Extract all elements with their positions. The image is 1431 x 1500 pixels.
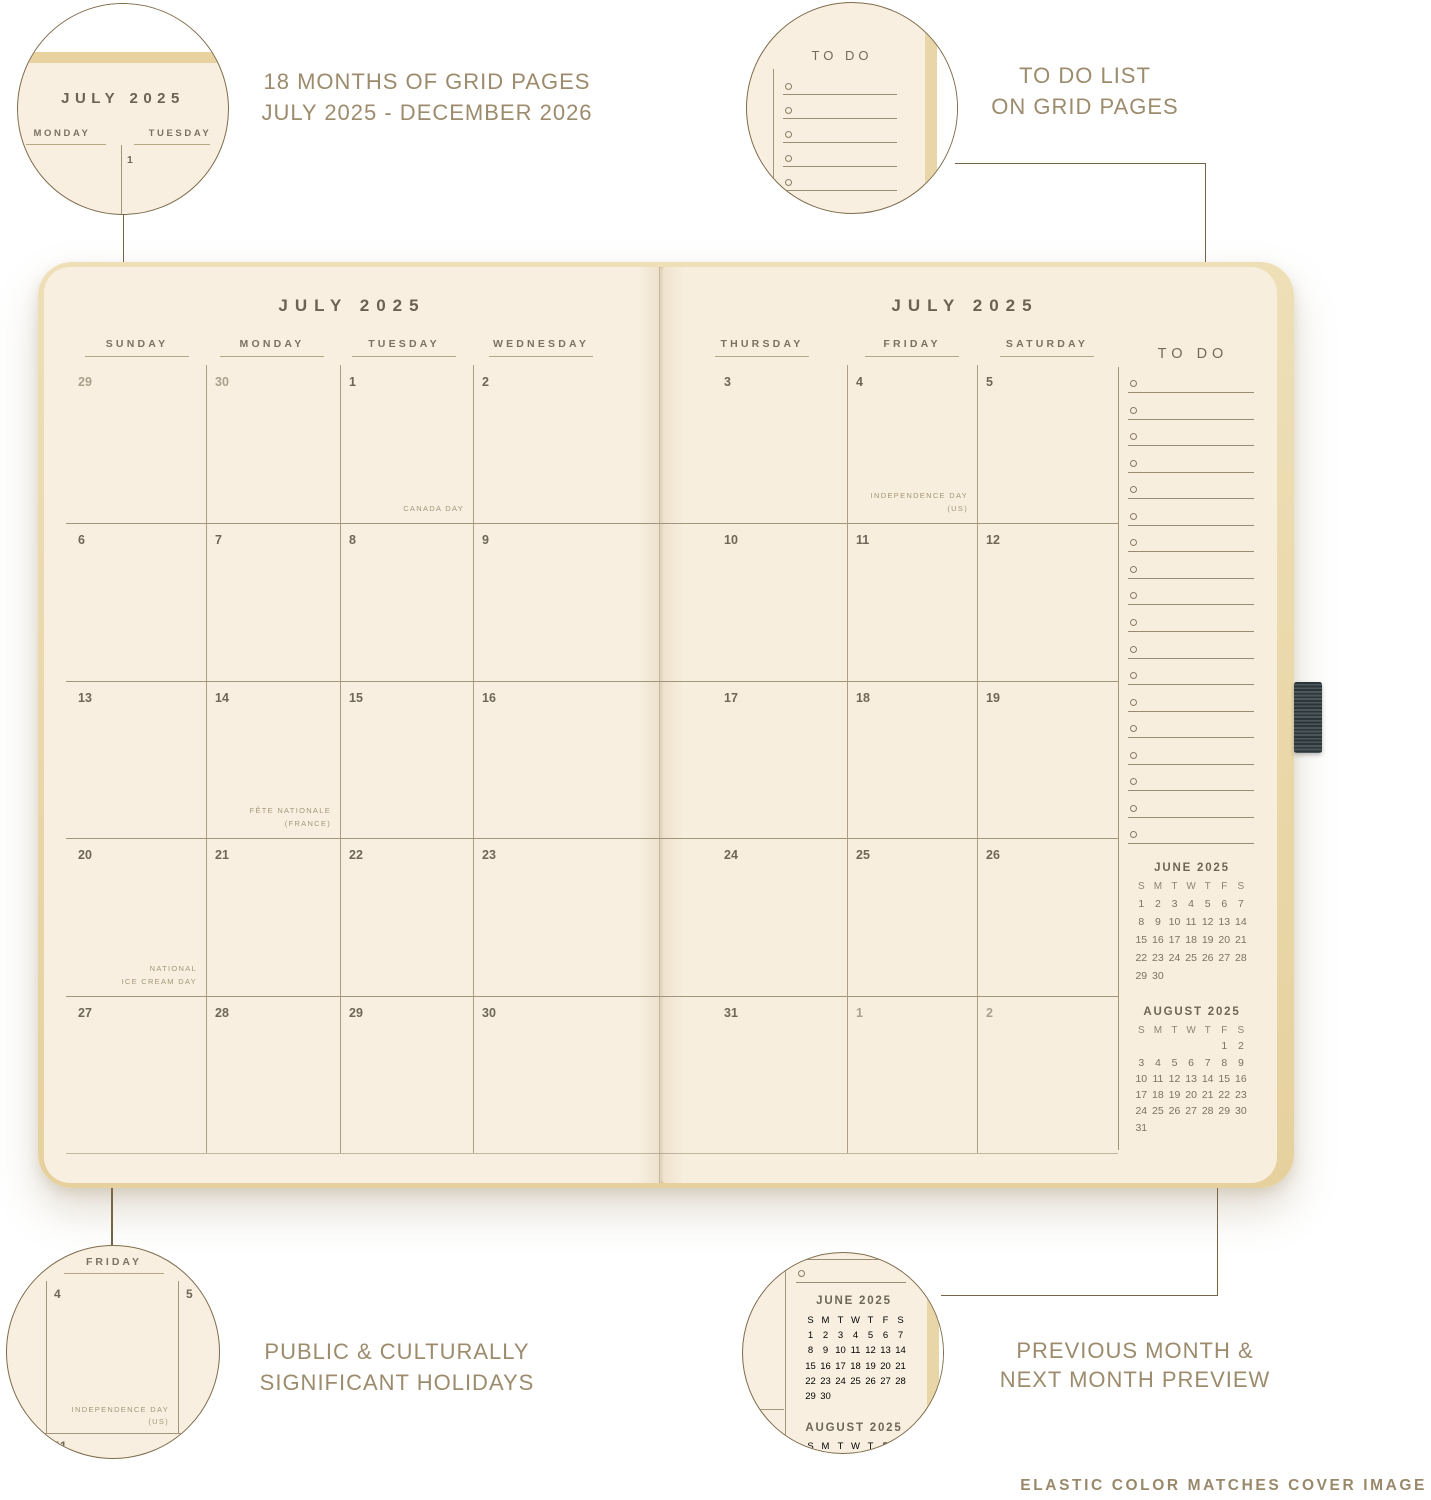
todo-item-circle-icon: [1130, 831, 1137, 838]
todo-item-8: [1128, 566, 1254, 592]
cell-date-number: 6: [78, 533, 85, 547]
todo-item-18: [1128, 831, 1254, 857]
mini-cal-date: 8: [1133, 916, 1150, 928]
mini-cal-wrap: JUNE 2025SMTWTFS123456789101112131415161…: [1133, 862, 1251, 982]
bubble4-june-week-3: 15161718192021: [803, 1356, 908, 1371]
mini-cal-date: 7: [1233, 898, 1250, 910]
todo-item-11: [1128, 646, 1254, 672]
mini-cal-date: 16: [818, 1361, 833, 1372]
mini-cal-date: 20: [878, 1361, 893, 1372]
mini-cal-weekday-row: SMTWTFS: [1133, 881, 1251, 892]
mini-cal-date: 28: [1199, 1105, 1216, 1117]
todo-item-17: [1128, 805, 1254, 831]
caption-preview-line1: PREVIOUS MONTH &: [935, 1336, 1335, 1365]
mini-cal-week-3: 15161718192021: [1133, 928, 1251, 946]
mini-cal-date: 10: [1166, 916, 1183, 928]
mini-cal-date: 2: [1233, 1040, 1250, 1052]
cell-date-number: 10: [724, 533, 738, 547]
left-page-cell-r5c3: 29: [340, 996, 473, 1153]
todo-item-3: [1128, 433, 1254, 459]
bubble2-white-edge: [937, 3, 957, 213]
mini-cal-date: 6: [878, 1330, 893, 1341]
bubble4-row-line-left: [751, 1409, 784, 1410]
mini-cal-date: 28: [1233, 952, 1250, 964]
todo-item-circle-icon: [1130, 566, 1137, 573]
todo-item-circle-icon: [1130, 433, 1137, 440]
right-page-cell-r4c1: 24: [680, 838, 847, 996]
right-page-cell-r5c3: 2: [977, 996, 1118, 1153]
right-page-cell-r3c3: 19: [977, 681, 1118, 838]
left-page-cell-r5c1: 27: [62, 996, 206, 1153]
todo-item-rule-line: [1128, 631, 1254, 632]
caption-grid-pages-line2: JULY 2025 - DECEMBER 2026: [177, 97, 677, 128]
right-page-cell-r5c2: 1: [847, 996, 977, 1153]
caption-holidays-line2: SIGNIFICANT HOLIDAYS: [147, 1367, 647, 1398]
mini-cal-week-2: 3456789: [1133, 1052, 1251, 1068]
left-page-cell-r5c4: 30: [473, 996, 654, 1153]
left-page-cell-r2c2: 7: [206, 523, 340, 681]
todo-item-circle-icon: [1130, 672, 1137, 679]
todo-item-rule-line: [1128, 578, 1254, 579]
todo-item-rule-line: [1128, 790, 1254, 791]
bubble1-tuesday-label: TUESDAY: [134, 128, 226, 139]
mini-cal-weekday: T: [1199, 1025, 1216, 1036]
right-page-cell-r2c2: 11: [847, 523, 977, 681]
mini-cal-date: 9: [1150, 916, 1167, 928]
caption-preview-line2: NEXT MONTH PREVIEW: [935, 1365, 1335, 1394]
todo-item-circle-icon: [1130, 486, 1137, 493]
cell-date-number: 2: [986, 1006, 993, 1020]
mini-cal-weekday: F: [878, 1441, 893, 1452]
todo-item-rule-line: [1128, 843, 1254, 844]
mini-cal-date: 16: [1233, 1073, 1250, 1085]
todo-item-circle-icon: [1130, 407, 1137, 414]
mini-cal-date: 20: [1216, 934, 1233, 946]
bubble2-todo-rule-line: [783, 190, 897, 191]
mini-cal-weekday: S: [1133, 1025, 1150, 1036]
cell-date-number: 23: [482, 848, 496, 862]
mini-cal-date: 9: [1233, 1057, 1250, 1069]
bubble4-june-week-1: 1234567: [803, 1326, 908, 1341]
bubble4-todo-line-top: [793, 1259, 905, 1260]
mini-cal-weekday: S: [803, 1441, 818, 1452]
mini-cal-date: 17: [833, 1361, 848, 1372]
mini-cal-weekday: W: [848, 1315, 863, 1326]
mini-cal-week-1: 12: [1133, 1036, 1251, 1052]
mini-cal-week-3: 10111213141516: [1133, 1069, 1251, 1085]
left-page-cell-r1c4: 2: [473, 365, 654, 523]
caption-grid-pages: 18 MONTHS OF GRID PAGES JULY 2025 - DECE…: [177, 66, 677, 128]
cell-date-number: 11: [856, 533, 869, 547]
todo-item-rule-line: [1128, 711, 1254, 712]
mini-cal-date: 13: [1183, 1073, 1200, 1085]
todo-item-rule-line: [1128, 498, 1254, 499]
mini-cal-date: 27: [1183, 1105, 1200, 1117]
mini-cal-date: 29: [1216, 1105, 1233, 1117]
day-header-saturday: SATURDAY: [1000, 338, 1094, 357]
bubble4-todo-line: [796, 1282, 906, 1283]
todo-item-circle-icon: [1130, 592, 1137, 599]
todo-item-13: [1128, 699, 1254, 725]
mini-cal-date: 26: [863, 1376, 878, 1387]
bubble1-date-1: 1: [127, 154, 133, 166]
cell-date-number: 4: [856, 375, 863, 389]
mini-cal-date: 25: [848, 1376, 863, 1387]
bubble2-todo-circle-icon: [785, 155, 792, 162]
left-page-title: JULY 2025: [278, 296, 425, 316]
todo-item-circle-icon: [1130, 778, 1137, 785]
cell-date-number: 18: [856, 691, 870, 705]
cell-date-number: 16: [482, 691, 496, 705]
mini-cal-weekday: W: [1183, 1025, 1200, 1036]
bubble2-todo-rule-line: [783, 118, 897, 119]
mini-cal-date: 18: [848, 1361, 863, 1372]
bubble2-cover-edge: [925, 3, 937, 213]
todo-item-circle-icon: [1130, 460, 1137, 467]
todo-item-circle-icon: [1130, 725, 1137, 732]
mini-cal-week-5: 2930: [1133, 964, 1251, 982]
cell-date-number: 30: [482, 1006, 496, 1020]
mini-cal-title: JUNE 2025: [1133, 862, 1251, 874]
cell-date-number: 24: [724, 848, 738, 862]
mini-cal-date: 5: [1199, 898, 1216, 910]
bubble4-june-week-4: 22232425262728: [803, 1372, 908, 1387]
bubble2-todo-circle-icon: [785, 83, 792, 90]
left-page-cell-r5c2: 28: [206, 996, 340, 1153]
bubble4-white-edge: [939, 1253, 943, 1453]
bubble3-date-4: 4: [54, 1287, 61, 1301]
mini-cal-date: 1: [803, 1330, 818, 1341]
connector-todo-zoom-horizontal: [955, 163, 1205, 164]
mini-cal-title: AUGUST 2025: [1133, 1006, 1251, 1018]
cell-date-number: 29: [349, 1006, 363, 1020]
mini-cal-date: 15: [1216, 1073, 1233, 1085]
day-header-tuesday: TUESDAY: [352, 338, 456, 357]
right-page-cell-r1c3: 5: [977, 365, 1118, 523]
right-page-title: JULY 2025: [891, 296, 1038, 316]
left-page-cell-r3c2: 14FÊTE NATIONALE(FRANCE): [206, 681, 340, 838]
mini-cal-date: 26: [1166, 1105, 1183, 1117]
holiday-zoom-bubble: FRIDAY 4 5 INDEPENDENCE DAY (US) 11: [6, 1245, 220, 1459]
mini-cal-weekday: S: [893, 1315, 908, 1326]
product-image-stage: 18 MONTHS OF GRID PAGES JULY 2025 - DECE…: [0, 0, 1431, 1500]
todo-item-rule-line: [1128, 392, 1254, 393]
right-page-cell-r1c2: 4INDEPENDENCE DAY(US): [847, 365, 977, 523]
mini-cal-date: 1: [1133, 898, 1150, 910]
cell-date-number: 29: [78, 375, 92, 389]
holiday-label: CANADA DAY: [403, 503, 464, 515]
todo-item-14: [1128, 725, 1254, 751]
bubble1-monday-label: MONDAY: [18, 128, 106, 139]
todo-item-1: [1128, 380, 1254, 406]
left-page-cell-r4c3: 22: [340, 838, 473, 996]
holiday-label: INDEPENDENCE DAY(US): [871, 490, 968, 515]
mini-cal-date: 31: [1133, 1122, 1150, 1134]
mini-cal-weekday: T: [1166, 881, 1183, 892]
mini-cal-date: 30: [1150, 970, 1167, 982]
todo-item-circle-icon: [1130, 513, 1137, 520]
mini-cal-weekday: M: [818, 1441, 833, 1452]
mini-cal-weekday: M: [1150, 1025, 1167, 1036]
mini-cal-weekday: F: [1216, 1025, 1233, 1036]
mini-cal-date: 3: [1133, 1057, 1150, 1069]
holiday-label-line: NATIONAL: [121, 963, 197, 975]
cell-date-number: 30: [215, 375, 229, 389]
right-page-cell-r4c2: 25: [847, 838, 977, 996]
mini-cal-date: 21: [893, 1361, 908, 1372]
mini-cal-week-1: 1234567: [1133, 892, 1251, 910]
left-page-cell-r2c3: 8: [340, 523, 473, 681]
right-page-cell-r5c1: 31: [680, 996, 847, 1153]
cell-date-number: 1: [349, 375, 356, 389]
mini-cal-date: 11: [1150, 1073, 1167, 1085]
mini-cal-date: 4: [848, 1330, 863, 1341]
mini-cal-date: 22: [1216, 1089, 1233, 1101]
todo-zoom-bubble: TO DO: [746, 2, 958, 214]
cell-date-number: 1: [856, 1006, 863, 1020]
mini-cal-date: 9: [818, 1345, 833, 1356]
todo-item-circle-icon: [1130, 539, 1137, 546]
mini-cal-date: 23: [818, 1376, 833, 1387]
mini-cal-date: 21: [1233, 934, 1250, 946]
todo-item-rule-line: [1128, 525, 1254, 526]
right-page-cell-r3c2: 18: [847, 681, 977, 838]
caption-holidays: PUBLIC & CULTURALLY SIGNIFICANT HOLIDAYS: [147, 1336, 647, 1398]
bubble1-monday-underline: [26, 144, 106, 145]
todo-item-rule-line: [1128, 764, 1254, 765]
mini-cal-weekday: W: [1183, 881, 1200, 892]
left-page-cell-r1c1: 29: [62, 365, 206, 523]
bubble1-white-top: [18, 4, 228, 52]
mini-cal-date: 10: [1133, 1073, 1150, 1085]
cell-date-number: 21: [215, 848, 229, 862]
bubble3-left-column-line: [46, 1281, 47, 1433]
right-page-cell-r1c1: 3: [680, 365, 847, 523]
bubble3-date-5: 5: [186, 1287, 193, 1301]
mini-cal-week-2: 891011121314: [1133, 910, 1251, 928]
bubble2-todo-rule-line: [783, 94, 897, 95]
mini-cal-date: 10: [833, 1345, 848, 1356]
holiday-label-line: INDEPENDENCE DAY: [871, 490, 968, 502]
mini-cal-weekday: W: [848, 1441, 863, 1452]
mini-cal-date: 15: [803, 1361, 818, 1372]
todo-item-rule-line: [1128, 445, 1254, 446]
cell-date-number: 7: [215, 533, 222, 547]
holiday-label-line: ICE CREAM DAY: [121, 976, 197, 988]
mini-cal-weekday: T: [833, 1315, 848, 1326]
mini-cal-date: 19: [1166, 1089, 1183, 1101]
bubble3-right-column-line: [178, 1281, 179, 1433]
mini-cal-date: 11: [848, 1345, 863, 1356]
caption-preview: PREVIOUS MONTH & NEXT MONTH PREVIEW: [935, 1336, 1335, 1394]
day-header-monday: MONDAY: [220, 338, 324, 357]
todo-item-rule-line: [1128, 604, 1254, 605]
todo-item-circle-icon: [1130, 805, 1137, 812]
todo-item-rule-line: [1128, 419, 1254, 420]
cell-date-number: 12: [986, 533, 1000, 547]
bubble4-june-week-2: 891011121314: [803, 1341, 908, 1356]
mini-cal-weekday: F: [1216, 881, 1233, 892]
mini-cal-date: 12: [1166, 1073, 1183, 1085]
todo-item-circle-icon: [1130, 646, 1137, 653]
mini-cal-date: 20: [1183, 1089, 1200, 1101]
cell-date-number: 28: [215, 1006, 229, 1020]
mini-cal-date: 30: [1233, 1105, 1250, 1117]
mini-cal-date: 8: [803, 1345, 818, 1356]
bubble4-august-days: SMTWTFS: [803, 1441, 908, 1452]
caption-holidays-line1: PUBLIC & CULTURALLY: [147, 1336, 647, 1367]
holiday-label-line: (FRANCE): [250, 818, 331, 830]
mini-cal-weekday: S: [803, 1315, 818, 1326]
mini-cal-date: 23: [1233, 1089, 1250, 1101]
mini-cal-date: 29: [1133, 970, 1150, 982]
bubble1-cover-edge: [18, 52, 228, 63]
mini-cal-date: 15: [1133, 934, 1150, 946]
bubble4-june-title: JUNE 2025: [774, 1295, 934, 1307]
mini-cal-date: 2: [1150, 898, 1167, 910]
bubble2-todo-rule-line: [783, 166, 897, 167]
mini-cal-weekday: T: [863, 1441, 878, 1452]
left-page-cell-r4c1: 20NATIONALICE CREAM DAY: [62, 838, 206, 996]
day-header-sunday: SUNDAY: [85, 338, 189, 357]
cell-date-number: 14: [215, 691, 229, 705]
mini-cal-date: 24: [833, 1376, 848, 1387]
mini-cal-date: 24: [1133, 1105, 1150, 1117]
bubble4-june-weekday-row: SMTWTFS: [803, 1315, 908, 1326]
todo-item-circle-icon: [1130, 380, 1137, 387]
left-page-cell-r2c4: 9: [473, 523, 654, 681]
mini-cal-week-4: 17181920212223: [1133, 1085, 1251, 1101]
bubble4-august-title: AUGUST 2025: [774, 1422, 934, 1434]
mini-cal-date: 3: [1166, 898, 1183, 910]
mini-cal-weekday: T: [863, 1315, 878, 1326]
mini-cal-date: 19: [1199, 934, 1216, 946]
todo-item-rule-line: [1128, 472, 1254, 473]
mini-cal-date: 18: [1150, 1089, 1167, 1101]
mini-cal-date: 26: [1199, 952, 1216, 964]
mini-cal-date: 17: [1133, 1089, 1150, 1101]
mini-cal-date: 22: [1133, 952, 1150, 964]
left-page-cell-r4c4: 23: [473, 838, 654, 996]
right-page-cell-r2c3: 12: [977, 523, 1118, 681]
elastic-pen-loop: [1294, 682, 1322, 753]
bubble4-june-week-5: 2930: [803, 1387, 908, 1402]
mini-cal-weekday: M: [1150, 881, 1167, 892]
right-page-cell-r4c3: 26: [977, 838, 1118, 996]
mini-cal-date: 29: [803, 1391, 818, 1402]
mini-cal-weekday: F: [878, 1315, 893, 1326]
todo-item-circle-icon: [1130, 699, 1137, 706]
cell-date-number: 20: [78, 848, 92, 862]
month-zoom-bubble: JULY 2025 MONDAY TUESDAY 1: [17, 3, 229, 215]
todo-item-10: [1128, 619, 1254, 645]
todo-item-circle-icon: [1130, 752, 1137, 759]
mini-cal-date: 28: [893, 1376, 908, 1387]
left-page-cell-r3c1: 13: [62, 681, 206, 838]
connector-preview-zoom-horizontal: [941, 1295, 1218, 1296]
mini-cal-weekday-row: SMTWTFS: [1133, 1025, 1251, 1036]
mini-cal-date: 11: [1183, 916, 1200, 928]
todo-item-9: [1128, 592, 1254, 618]
bubble2-todo-circle-icon: [785, 179, 792, 186]
mini-cal-date: 7: [1199, 1057, 1216, 1069]
todo-item-circle-icon: [1130, 619, 1137, 626]
todo-item-12: [1128, 672, 1254, 698]
mini-cal-date: 2: [818, 1330, 833, 1341]
mini-cal-date: 13: [878, 1345, 893, 1356]
holiday-label-line: CANADA DAY: [403, 503, 464, 515]
elastic-footer-note: ELASTIC COLOR MATCHES COVER IMAGE: [947, 1477, 1427, 1495]
mini-cal-weekday: S: [893, 1441, 908, 1452]
mini-cal-date: 1: [1216, 1040, 1233, 1052]
day-header-friday: FRIDAY: [865, 338, 959, 357]
cell-date-number: 13: [78, 691, 92, 705]
mini-cal-week-4: 22232425262728: [1133, 946, 1251, 964]
cell-date-number: 2: [482, 375, 489, 389]
holiday-label-line: (US): [871, 503, 968, 515]
cell-date-number: 27: [78, 1006, 92, 1020]
bubble2-todo-title: TO DO: [767, 48, 917, 63]
cell-date-number: 17: [724, 691, 738, 705]
todo-item-16: [1128, 778, 1254, 804]
mini-cal-week-6: 31: [1133, 1117, 1251, 1133]
bubble2-todo-circle-icon: [785, 107, 792, 114]
mini-cal-date: 14: [893, 1345, 908, 1356]
bubble3-friday-label: FRIDAY: [7, 1256, 220, 1268]
mini-cal-date: 18: [1183, 934, 1200, 946]
mini-cal-date: 13: [1216, 916, 1233, 928]
mini-cal-date: 6: [1216, 898, 1233, 910]
left-page-cell-r3c4: 16: [473, 681, 654, 838]
left-page-cell-r3c3: 15: [340, 681, 473, 838]
bubble4-june-mini: SMTWTFS123456789101112131415161718192021…: [803, 1315, 908, 1402]
mini-cal-weekday: M: [818, 1315, 833, 1326]
todo-item-7: [1128, 539, 1254, 565]
todo-item-rule-line: [1128, 658, 1254, 659]
mini-cal-weekday: S: [1133, 881, 1150, 892]
bubble1-tuesday-underline: [134, 144, 210, 145]
left-page-cell-r2c1: 6: [62, 523, 206, 681]
right-page-cell-r2c1: 10: [680, 523, 847, 681]
mini-cal-weekday: S: [1233, 1025, 1250, 1036]
bubble3-row-line: [7, 1433, 183, 1434]
preview-zoom-bubble: JUNE 2025 SMTWTFS12345678910111213141516…: [742, 1252, 944, 1454]
mini-cal-wrap: AUGUST 2025SMTWTFS1234567891011121314151…: [1133, 1006, 1251, 1134]
mini-cal-date: 4: [1183, 898, 1200, 910]
todo-column-divider: [1118, 367, 1119, 1150]
day-header-thursday: THURSDAY: [715, 338, 809, 357]
mini-cal-date: 23: [1150, 952, 1167, 964]
cell-date-number: 26: [986, 848, 1000, 862]
caption-grid-pages-line1: 18 MONTHS OF GRID PAGES: [177, 66, 677, 97]
mini-cal-date: 17: [1166, 934, 1183, 946]
bubble4-todo-ring: [798, 1270, 805, 1277]
bubble3-friday-underline: [64, 1273, 164, 1274]
mini-cal-date: 27: [1216, 952, 1233, 964]
mini-cal-date: 22: [803, 1376, 818, 1387]
bubble1-month-title: JULY 2025: [18, 90, 228, 107]
holiday-label-line: FÊTE NATIONALE: [250, 805, 331, 817]
holiday-label: FÊTE NATIONALE(FRANCE): [250, 805, 331, 830]
todo-item-rule-line: [1128, 551, 1254, 552]
todo-item-rule-line: [1128, 684, 1254, 685]
mini-cal-date: 12: [863, 1345, 878, 1356]
mini-cal-date: 21: [1199, 1089, 1216, 1101]
cell-date-number: 15: [349, 691, 363, 705]
todo-item-2: [1128, 407, 1254, 433]
mini-cal-weekday: S: [1233, 881, 1250, 892]
mini-cal-date: 5: [863, 1330, 878, 1341]
